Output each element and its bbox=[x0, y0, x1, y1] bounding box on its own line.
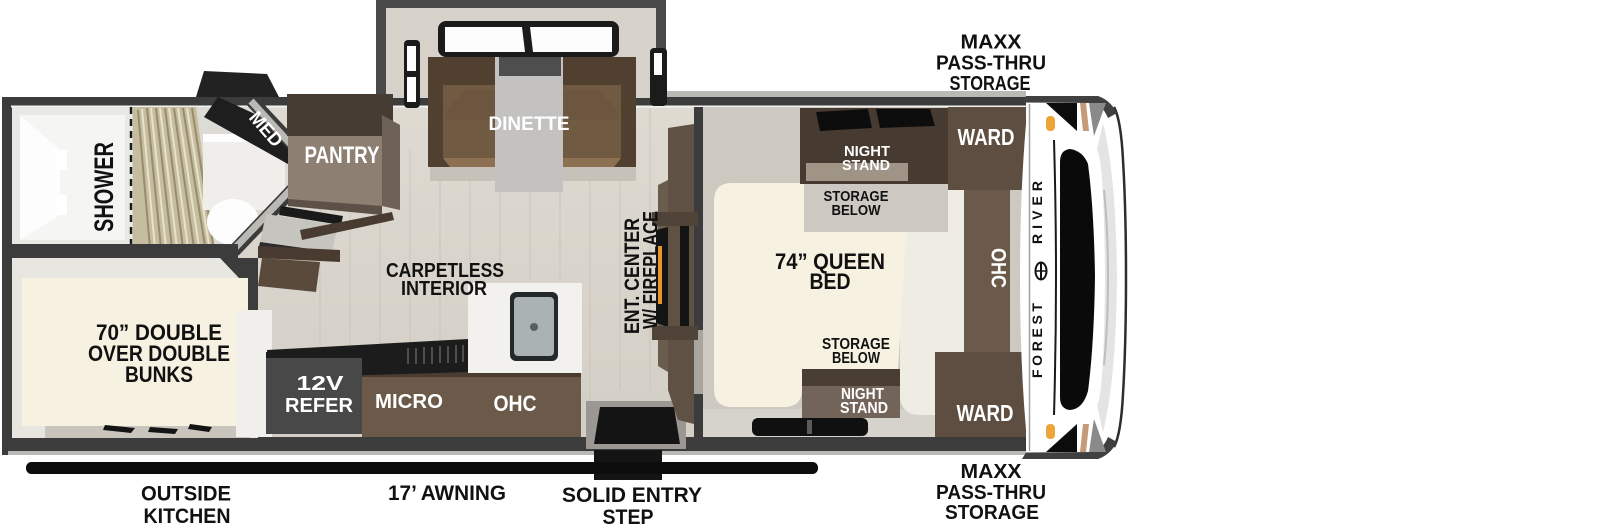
svg-text:FOREST: FOREST bbox=[1029, 300, 1045, 378]
svg-text:REFER: REFER bbox=[285, 395, 354, 417]
svg-text:RIVER: RIVER bbox=[1029, 178, 1045, 244]
svg-text:OUTSIDE: OUTSIDE bbox=[141, 483, 231, 506]
svg-text:PASS-THRU: PASS-THRU bbox=[936, 52, 1046, 74]
svg-text:INTERIOR: INTERIOR bbox=[401, 278, 487, 300]
svg-text:STORAGE: STORAGE bbox=[945, 502, 1039, 524]
svg-text:W/ FIREPLACE: W/ FIREPLACE bbox=[640, 211, 663, 329]
svg-text:BED: BED bbox=[810, 269, 851, 294]
svg-text:BUNKS: BUNKS bbox=[125, 362, 193, 387]
svg-text:STEP: STEP bbox=[603, 506, 654, 525]
svg-text:WARD: WARD bbox=[957, 400, 1014, 426]
svg-text:17’ AWNING: 17’ AWNING bbox=[388, 482, 506, 505]
svg-text:MICRO: MICRO bbox=[375, 391, 443, 413]
svg-text:PANTRY: PANTRY bbox=[305, 142, 380, 169]
svg-text:STAND: STAND bbox=[840, 400, 888, 417]
svg-text:OHC: OHC bbox=[494, 391, 537, 416]
svg-text:SHOWER: SHOWER bbox=[89, 142, 119, 232]
svg-text:12V: 12V bbox=[297, 373, 345, 395]
svg-text:DINETTE: DINETTE bbox=[489, 114, 570, 135]
svg-text:STORAGE: STORAGE bbox=[950, 73, 1031, 95]
svg-text:KITCHEN: KITCHEN bbox=[144, 505, 231, 525]
svg-text:BELOW: BELOW bbox=[832, 202, 882, 219]
svg-text:OHC: OHC bbox=[987, 248, 1010, 288]
svg-text:MAXX: MAXX bbox=[961, 32, 1023, 54]
svg-text:MAXX: MAXX bbox=[961, 461, 1023, 483]
svg-text:BELOW: BELOW bbox=[832, 350, 881, 367]
svg-text:PASS-THRU: PASS-THRU bbox=[936, 482, 1046, 504]
svg-text:STAND: STAND bbox=[842, 157, 890, 174]
svg-text:WARD: WARD bbox=[958, 124, 1015, 150]
svg-text:SOLID ENTRY: SOLID ENTRY bbox=[562, 484, 702, 507]
